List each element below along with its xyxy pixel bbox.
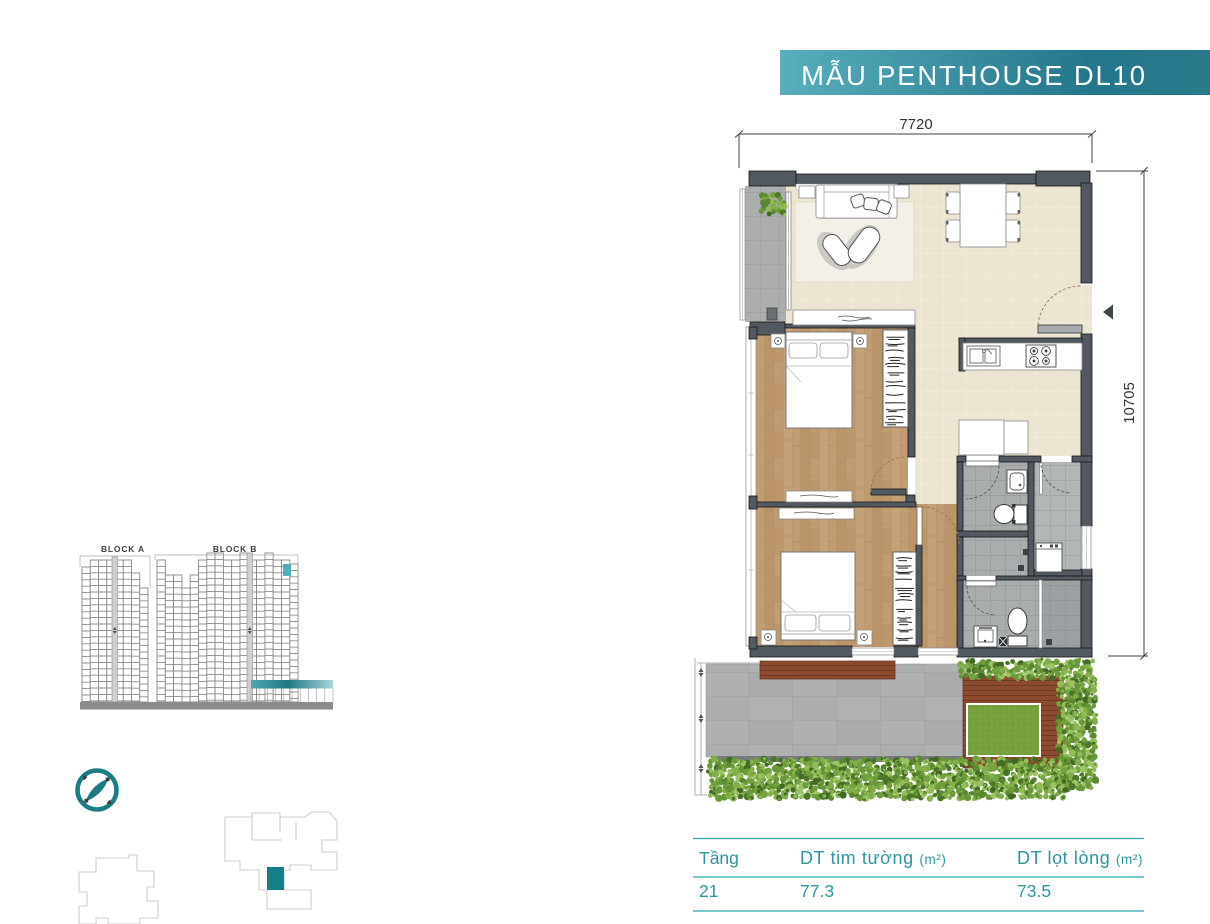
svg-text:77.3: 77.3 (800, 881, 834, 901)
svg-text:10705: 10705 (1121, 382, 1138, 424)
svg-text:73.5: 73.5 (1017, 881, 1051, 901)
svg-text:21: 21 (699, 881, 718, 901)
svg-text:MẪU PENTHOUSE DL10: MẪU PENTHOUSE DL10 (801, 60, 1147, 91)
svg-text:DT lọt lòng (m²): DT lọt lòng (m²) (1017, 848, 1143, 868)
svg-text:7720: 7720 (899, 116, 932, 133)
svg-text:DT tim tường (m²): DT tim tường (m²) (800, 848, 946, 868)
svg-text:BLOCK A: BLOCK A (101, 544, 145, 554)
svg-text:Tầng: Tầng (699, 848, 739, 868)
svg-text:BLOCK B: BLOCK B (213, 544, 257, 554)
